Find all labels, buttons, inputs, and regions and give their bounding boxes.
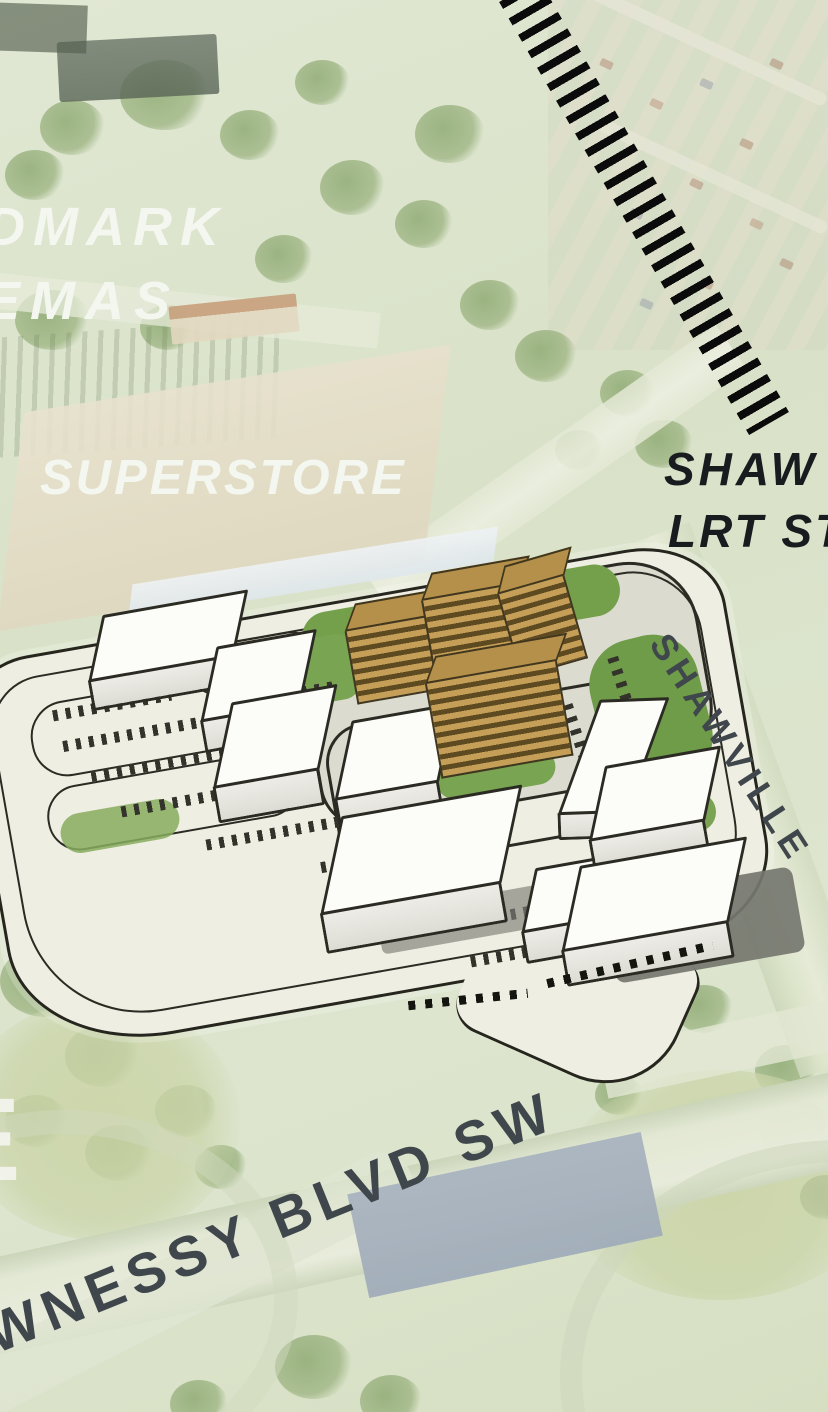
trees-patch <box>220 110 280 160</box>
aerial-site-plan-map: DMARK EMAS SUPERSTORE SHAW LRT ST SHAWVI… <box>0 0 828 1412</box>
trees-patch <box>515 330 577 382</box>
trees-patch <box>320 160 385 215</box>
trees-patch <box>295 60 350 105</box>
house-roof <box>689 178 704 191</box>
trees-patch <box>5 150 65 200</box>
landmark-cinemas-label-line1: DMARK <box>0 196 227 258</box>
trees-patch <box>415 105 485 163</box>
house-roof <box>649 98 664 111</box>
landmark-cinemas-label-line2: EMAS <box>0 270 180 332</box>
house-roof <box>739 138 754 151</box>
house-roof <box>639 298 654 311</box>
superstore-label: SUPERSTORE <box>40 450 407 506</box>
house-roof <box>749 218 764 231</box>
trees-patch <box>395 200 453 248</box>
clipped-edge-label: E <box>0 1072 21 1208</box>
house-roof <box>779 258 794 271</box>
trees-patch <box>255 235 313 283</box>
trees-patch <box>360 1375 422 1412</box>
brown-office-building <box>420 635 573 778</box>
trees-patch <box>460 280 520 330</box>
lrt-station-label-line1: SHAW <box>664 442 818 496</box>
dark-building <box>0 2 88 53</box>
lrt-station-label-line2: LRT ST <box>668 504 828 558</box>
house-roof <box>699 78 714 91</box>
white-building <box>199 690 326 824</box>
house-roof <box>599 58 614 71</box>
trees-patch <box>40 100 105 155</box>
suburb-street <box>587 0 828 107</box>
